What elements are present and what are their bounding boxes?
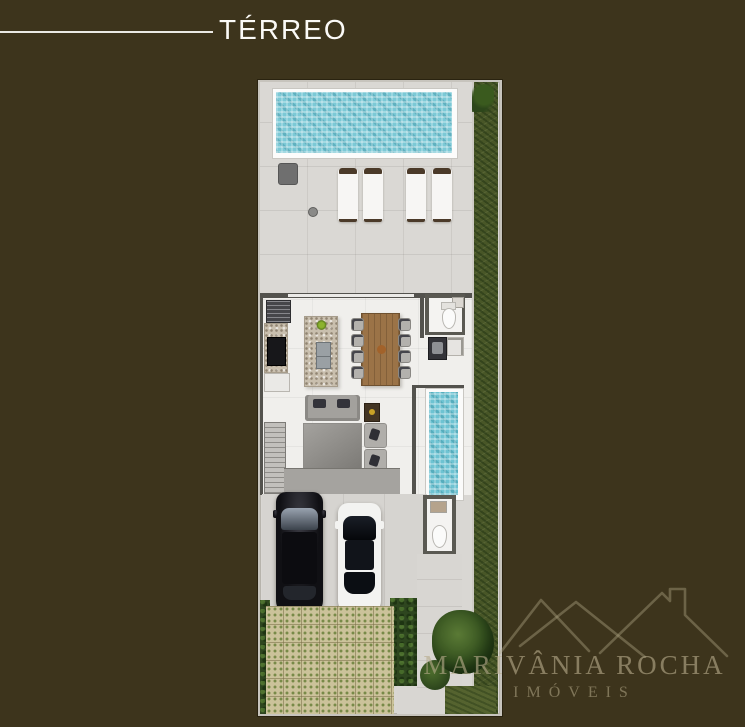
lap-pool-wall: [412, 385, 416, 499]
lounge-chair: [338, 168, 358, 222]
swimming-pool: [272, 88, 458, 159]
car-windshield: [343, 516, 376, 540]
dining-table: [361, 313, 400, 386]
lap-pool: [425, 388, 464, 501]
lounge-chair: [432, 168, 452, 222]
title-rule: [0, 31, 213, 33]
walkway-step: [397, 690, 419, 714]
rear-garden: [445, 686, 496, 714]
car-rear-window: [344, 572, 375, 594]
dining-chair: [398, 334, 411, 347]
dining-chair: [351, 334, 364, 347]
powder-room: [425, 294, 465, 335]
plant-icon: [316, 320, 327, 330]
house-left-wall: [260, 298, 263, 495]
driveway-pavers: [266, 606, 394, 714]
dining-chair: [398, 366, 411, 379]
garden-plant: [472, 84, 494, 112]
glass-door: [288, 294, 414, 297]
dining-chair: [351, 350, 364, 363]
house-right-wall: [420, 298, 424, 338]
side-table: [364, 403, 380, 422]
tree: [432, 610, 494, 674]
sofa-pillow: [313, 399, 326, 408]
page-title: TÉRREO: [219, 14, 348, 46]
car-rear-window: [283, 586, 316, 600]
floor-plan: [258, 80, 502, 716]
house-rooflines-icon: [488, 586, 740, 658]
washing-machine: [428, 337, 447, 360]
car-mirror: [273, 510, 278, 518]
table-bowl: [377, 345, 386, 354]
kitchen-cabinet: [264, 373, 290, 392]
sofa-pillow: [337, 399, 350, 408]
black-car: [276, 492, 323, 614]
island-sink: [316, 342, 331, 369]
laundry-counter: [447, 337, 464, 356]
lounge-chair: [363, 168, 383, 222]
staircase: [264, 422, 286, 494]
garage-bathroom: [423, 495, 456, 555]
lap-pool-water: [429, 392, 458, 495]
car-windshield: [281, 508, 318, 530]
dining-chair: [398, 350, 411, 363]
lounge-chair: [406, 168, 426, 222]
dining-chair: [351, 366, 364, 379]
sofa: [305, 395, 360, 421]
area-rug: [303, 423, 362, 470]
bathroom-sink: [430, 501, 447, 513]
car-roof: [282, 532, 317, 584]
umbrella-pole: [308, 207, 318, 217]
car-roof: [345, 540, 374, 570]
refrigerator: [266, 300, 291, 323]
pool-water: [276, 92, 452, 153]
kitchen-island: [304, 316, 338, 387]
cooktop: [267, 337, 286, 366]
white-car: [338, 503, 381, 614]
armchair: [364, 423, 387, 448]
dining-chair: [398, 318, 411, 331]
car-mirror: [321, 510, 326, 518]
car-mirror: [379, 521, 384, 529]
dining-chair: [351, 318, 364, 331]
hedge: [390, 598, 417, 686]
car-mirror: [335, 521, 340, 529]
